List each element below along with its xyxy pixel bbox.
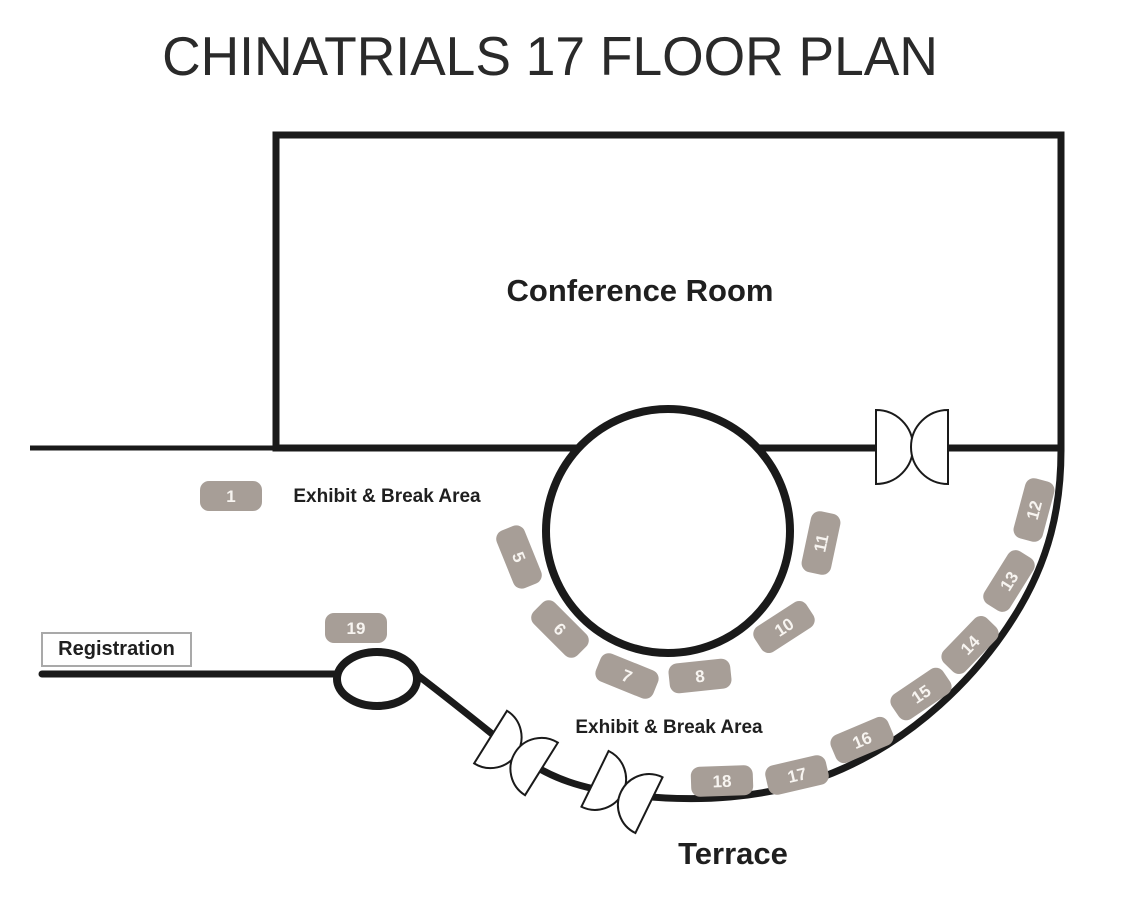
floorplan-linework (0, 0, 1140, 898)
double-door-icon-terrace-a (474, 711, 558, 795)
conference-room-label: Conference Room (440, 273, 840, 309)
exhibit-break-area-label-top: Exhibit & Break Area (287, 486, 487, 508)
round-room-outline (546, 409, 790, 653)
booth-1: 1 (200, 481, 262, 511)
floor-plan: CHINATRIALS 17 FLOOR PLAN Conference Roo… (0, 0, 1140, 898)
double-door-icon-terrace-b (581, 751, 662, 833)
registration-desk-oval (337, 652, 417, 706)
booth-18: 18 (690, 765, 753, 797)
booth-19: 19 (325, 613, 387, 643)
exhibit-break-area-label-bottom: Exhibit & Break Area (569, 717, 769, 739)
registration-label: Registration (41, 632, 192, 667)
page-title: CHINATRIALS 17 FLOOR PLAN (162, 24, 938, 88)
terrace-label: Terrace (633, 836, 833, 872)
